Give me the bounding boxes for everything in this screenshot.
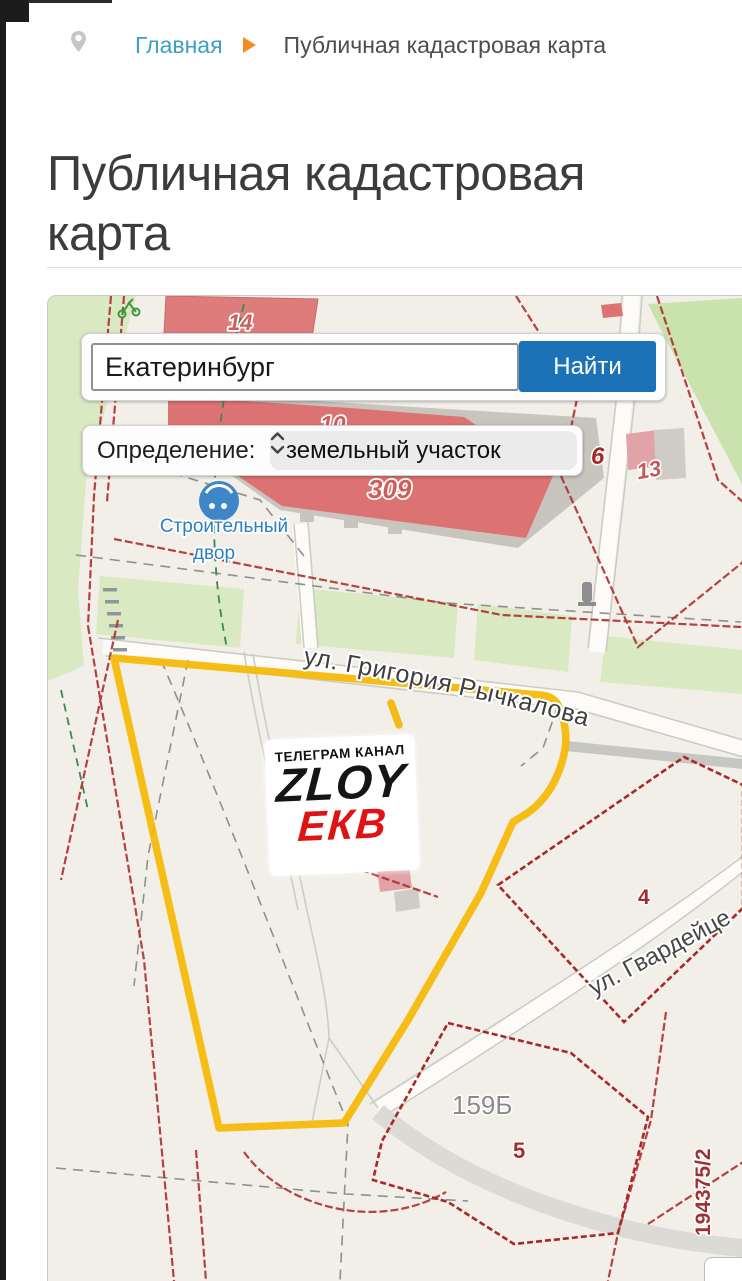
poi-store-icon[interactable] [199,481,239,521]
highlight-polygon [114,658,566,1128]
poi-label-line1: Строительный [160,516,288,537]
map-road-sweep [378,1112,742,1248]
parcel-label-13: 13 [635,455,663,484]
parcel-label-5: 5 [513,1138,525,1163]
breadcrumb: Главная Публичная кадастровая карта [70,28,710,62]
map-search-panel: Найти [81,333,666,401]
watermark: ТЕЛЕГРАМ КАНАЛ ZLOY ЕКВ [264,734,420,876]
parcel-label-14: 14 [228,310,252,335]
scan-artifact-left [0,0,6,1280]
map-corner-control[interactable] [704,1257,742,1281]
cadastral-number-label: 194375/2 [692,1148,715,1236]
select-chevron-icon [270,431,285,455]
breadcrumb-arrow-icon [243,37,256,53]
parcel-label-309: 309 [368,474,412,504]
breadcrumb-home-link[interactable]: Главная [135,32,223,59]
search-button[interactable]: Найти [519,341,656,392]
parcel-label-6: 6 [591,443,605,470]
filter-label: Определение: [97,437,255,465]
filter-selected-value: земельный участок [286,437,577,465]
page-title: Публичная кадастровая карта [47,145,707,265]
poi-label: Строительный двор [160,516,288,564]
watermark-line3: ЕКВ [267,802,419,846]
filter-select[interactable]: земельный участок [270,431,577,470]
monument-icon [578,582,596,606]
title-divider [47,267,742,268]
cadastral-map[interactable]: ул. Григория Рычкалова ул. Гвардейце 194… [47,295,742,1281]
poi-label-line2: двор [193,543,235,564]
breadcrumb-current: Публичная кадастровая карта [284,32,607,59]
parcel-label-4: 4 [638,886,650,909]
map-filter-panel: Определение: земельный участок [82,425,583,476]
parcel-label-159b: 159Б [452,1090,512,1120]
location-pin-icon [70,30,87,60]
scan-artifact-corner [0,0,29,22]
scan-artifact-top [28,0,112,3]
search-input[interactable] [91,343,519,391]
